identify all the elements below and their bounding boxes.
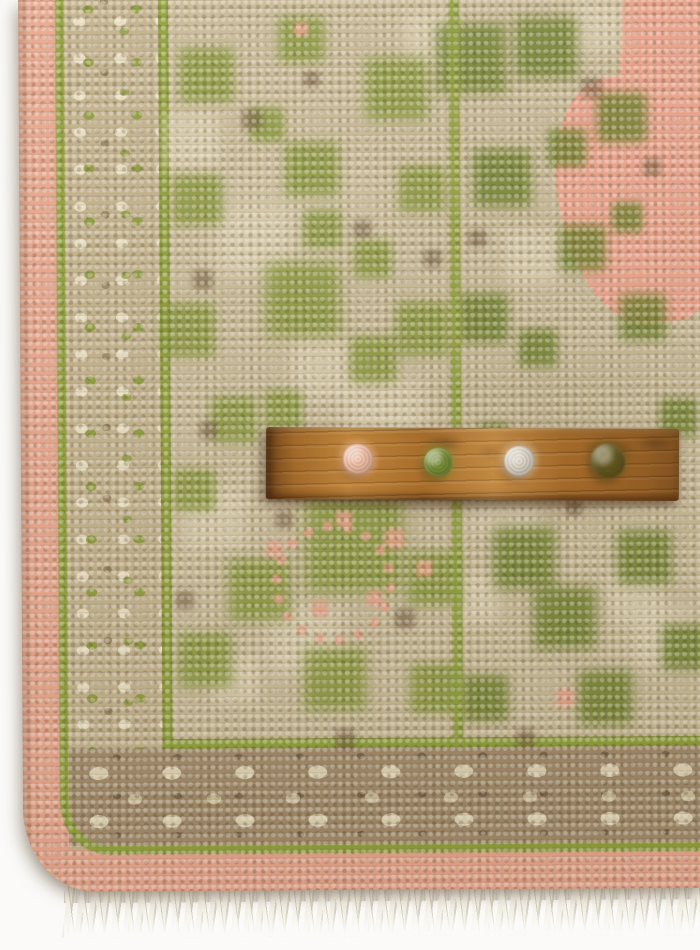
pom-pom-moss-green [424, 448, 452, 476]
wood-knot-smudge [634, 436, 676, 451]
rug-product-photo [0, 0, 700, 950]
pom-pom-ivory [504, 446, 534, 476]
pom-pom-dark-olive [591, 444, 625, 478]
pom-pom-blush-pink [343, 444, 373, 474]
